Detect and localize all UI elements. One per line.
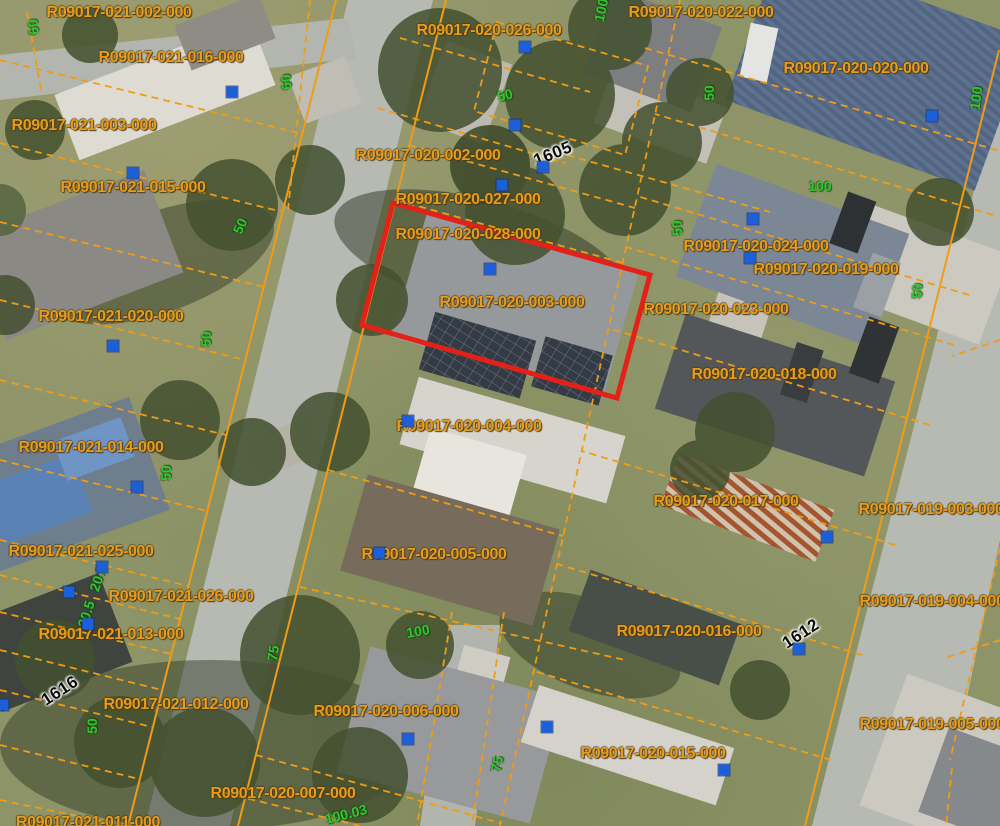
lot-dimension-label: 50 xyxy=(198,331,214,347)
parcel-id-label: R09017-020-017-000 xyxy=(654,493,799,511)
parcel-id-label: R09017-021-011-000 xyxy=(16,814,160,826)
parcel-id-label: R09017-020-006-000 xyxy=(314,703,459,721)
parcel-point-marker[interactable] xyxy=(748,214,759,225)
parcel-id-label: R09017-020-002-000 xyxy=(356,147,501,165)
parcel-id-label: R09017-020-016-000 xyxy=(617,623,762,641)
parcel-point-marker[interactable] xyxy=(794,644,805,655)
address-label: 1616 xyxy=(38,672,82,710)
parcel-point-marker[interactable] xyxy=(927,111,938,122)
parcel-id-label: R09017-021-002-000 xyxy=(47,4,192,22)
map-overlay-labels: R09017-021-002-000R09017-020-026-000R090… xyxy=(0,0,1000,826)
lot-dimension-label: 50 xyxy=(909,283,926,299)
lot-dimension-label: 50 xyxy=(84,718,100,734)
parcel-id-label: R09017-021-020-000 xyxy=(39,308,184,326)
parcel-point-marker[interactable] xyxy=(485,264,496,275)
lot-dimension-label: 75 xyxy=(488,755,507,774)
parcel-id-label: R09017-020-019-000 xyxy=(754,261,899,279)
parcel-point-marker[interactable] xyxy=(83,619,94,630)
parcel-point-marker[interactable] xyxy=(64,587,75,598)
parcel-point-marker[interactable] xyxy=(538,162,549,173)
parcel-point-marker[interactable] xyxy=(822,532,833,543)
parcel-point-marker[interactable] xyxy=(497,180,508,191)
parcel-point-marker[interactable] xyxy=(403,734,414,745)
parcel-id-label: R09017-021-025-000 xyxy=(9,543,154,561)
map-canvas[interactable]: R09017-021-002-000R09017-020-026-000R090… xyxy=(0,0,1000,826)
parcel-point-marker[interactable] xyxy=(403,416,414,427)
parcel-id-label: R09017-019-004-000 xyxy=(860,593,1000,611)
parcel-id-label: R09017-020-020-000 xyxy=(784,60,929,78)
parcel-id-label: R09017-021-003-000 xyxy=(12,117,157,135)
parcel-point-marker[interactable] xyxy=(510,120,521,131)
parcel-id-label: R09017-021-016-000 xyxy=(99,49,244,67)
lot-dimension-label: 50 xyxy=(495,85,514,104)
parcel-id-label: R09017-020-015-000 xyxy=(581,745,726,763)
parcel-id-label: R09017-020-027-000 xyxy=(396,191,541,209)
parcel-id-label: R09017-021-013-000 xyxy=(39,626,184,644)
lot-dimension-label: 75 xyxy=(264,644,282,662)
parcel-id-label: R09017-020-004-000 xyxy=(397,418,542,436)
parcel-point-marker[interactable] xyxy=(745,253,756,264)
lot-dimension-label: 100.03 xyxy=(323,801,368,826)
lot-dimension-label: 60 xyxy=(277,74,294,91)
lot-dimension-label: 100 xyxy=(967,85,986,110)
parcel-point-marker[interactable] xyxy=(128,168,139,179)
parcel-id-label: R09017-020-003-000 xyxy=(440,294,585,312)
parcel-id-label: R09017-019-005-000 xyxy=(860,716,1000,734)
parcel-point-marker[interactable] xyxy=(542,722,553,733)
lot-dimension-label: 50 xyxy=(701,85,717,101)
parcel-point-marker[interactable] xyxy=(374,548,385,559)
parcel-point-marker[interactable] xyxy=(227,87,238,98)
lot-dimension-label: 50 xyxy=(158,465,174,481)
parcel-id-label: R09017-020-022-000 xyxy=(629,4,774,22)
parcel-id-label: R09017-021-012-000 xyxy=(104,696,249,714)
parcel-id-label: R09017-020-026-000 xyxy=(417,22,562,40)
parcel-point-marker[interactable] xyxy=(0,700,9,711)
parcel-id-label: R09017-020-024-000 xyxy=(684,238,829,256)
parcel-point-marker[interactable] xyxy=(97,562,108,573)
parcel-id-label: R09017-020-018-000 xyxy=(692,366,837,384)
parcel-point-marker[interactable] xyxy=(132,482,143,493)
lot-dimension-label: 100 xyxy=(405,621,431,641)
parcel-id-label: R09017-021-014-000 xyxy=(19,439,164,457)
parcel-point-marker[interactable] xyxy=(108,341,119,352)
parcel-id-label: R09017-019-003-000 xyxy=(859,501,1000,519)
lot-dimension-label: 50 xyxy=(229,216,250,237)
parcel-id-label: R09017-021-026-000 xyxy=(109,588,254,606)
lot-dimension-label: 100 xyxy=(591,0,612,23)
parcel-id-label: R09017-020-023-000 xyxy=(644,301,789,319)
parcel-id-label: R09017-021-015-000 xyxy=(61,179,206,197)
parcel-point-marker[interactable] xyxy=(719,765,730,776)
parcel-id-label: R09017-020-007-000 xyxy=(211,785,356,803)
lot-dimension-label: 60 xyxy=(24,18,42,35)
lot-dimension-label: 100 xyxy=(808,178,831,194)
parcel-id-label: R09017-020-028-000 xyxy=(396,226,541,244)
parcel-point-marker[interactable] xyxy=(520,42,531,53)
lot-dimension-label: 50 xyxy=(669,220,686,236)
